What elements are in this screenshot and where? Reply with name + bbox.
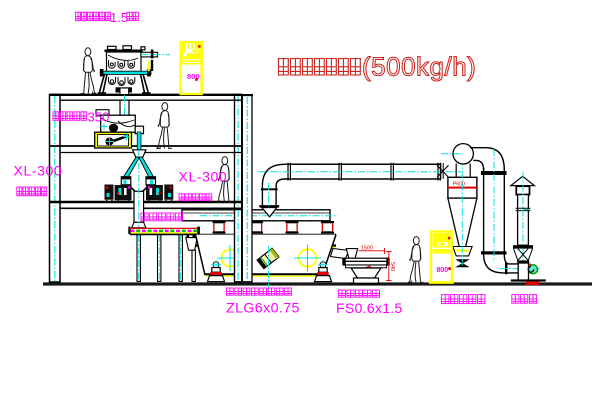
svg-text:P600: P600 [453, 181, 465, 187]
svg-text:800: 800 [437, 267, 449, 274]
svg-text:350: 350 [88, 110, 110, 125]
svg-text:XL-300: XL-300 [179, 169, 228, 185]
svg-text:540: 540 [389, 262, 395, 271]
svg-text:FS0.6x1.5: FS0.6x1.5 [336, 301, 402, 317]
svg-text:ZLG6x0.75: ZLG6x0.75 [226, 301, 300, 317]
svg-text:1.5: 1.5 [110, 10, 128, 25]
svg-text:(500kg/h): (500kg/h) [362, 52, 476, 82]
svg-text:XL-300: XL-300 [14, 163, 63, 179]
svg-text:1500: 1500 [361, 246, 373, 252]
